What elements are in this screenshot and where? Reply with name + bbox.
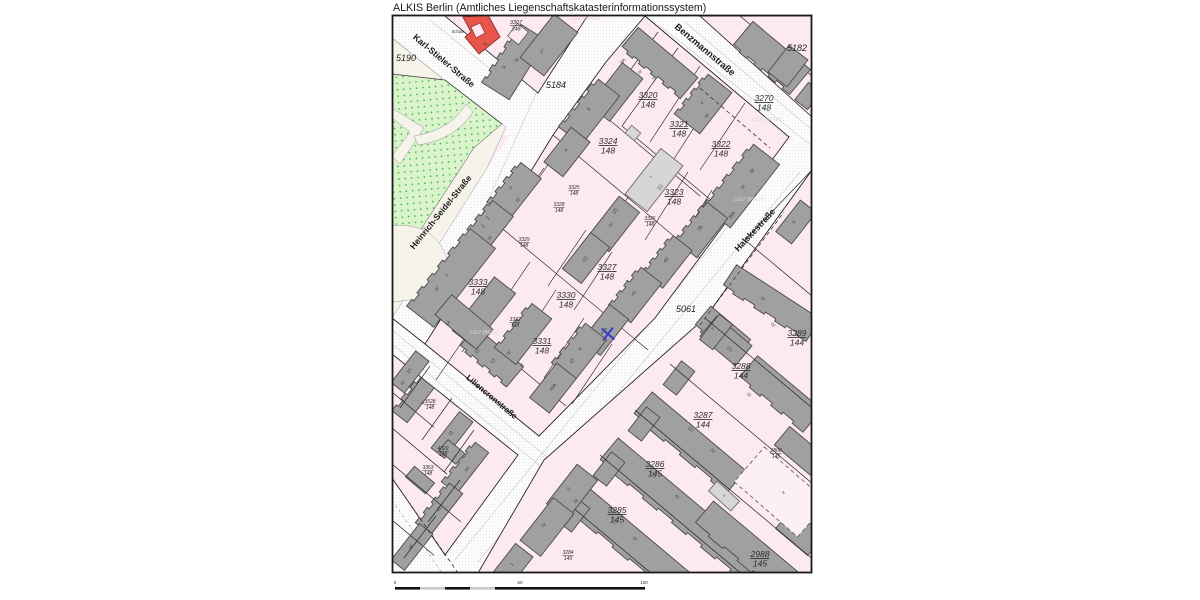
svg-text:148: 148 <box>757 103 771 113</box>
svg-text:148: 148 <box>426 405 435 411</box>
svg-text:3284: 3284 <box>562 550 573 556</box>
svg-text:3329: 3329 <box>518 237 529 243</box>
svg-text:LGV (8642l): LGV (8642l) <box>752 117 782 123</box>
svg-text:5061: 5061 <box>676 304 696 314</box>
svg-text:100: 100 <box>640 580 648 585</box>
svg-text:3270: 3270 <box>755 93 774 103</box>
svg-text:148: 148 <box>641 100 655 110</box>
svg-text:148: 148 <box>471 287 485 297</box>
svg-text:3328: 3328 <box>553 202 564 208</box>
svg-text:4822: 4822 <box>437 446 448 452</box>
svg-text:148: 148 <box>559 300 573 310</box>
svg-text:145: 145 <box>772 454 781 460</box>
svg-text:148: 148 <box>511 323 520 329</box>
svg-text:I: I <box>723 493 724 498</box>
svg-text:145: 145 <box>753 559 767 569</box>
svg-text:50: 50 <box>517 580 523 585</box>
svg-text:2860: 2860 <box>769 448 781 454</box>
svg-text:3363: 3363 <box>422 465 433 471</box>
svg-text:148: 148 <box>600 272 614 282</box>
svg-text:148: 148 <box>424 471 433 477</box>
svg-text:148: 148 <box>714 149 728 159</box>
svg-text:3321: 3321 <box>670 119 689 129</box>
svg-text:5190: 5190 <box>396 53 416 63</box>
svg-text:144: 144 <box>734 371 748 381</box>
svg-text:3326: 3326 <box>644 216 655 222</box>
svg-text:3333: 3333 <box>469 277 488 287</box>
svg-text:3322: 3322 <box>712 139 731 149</box>
svg-text:3287: 3287 <box>694 410 713 420</box>
svg-text:148: 148 <box>520 243 529 249</box>
svg-text:5182: 5182 <box>787 43 807 53</box>
svg-text:2988: 2988 <box>750 549 770 559</box>
svg-text:3307: 3307 <box>510 20 523 26</box>
svg-text:148: 148 <box>439 452 448 458</box>
svg-text:145: 145 <box>564 556 573 562</box>
svg-text:3286: 3286 <box>646 459 665 469</box>
svg-text:148: 148 <box>667 197 681 207</box>
svg-text:148: 148 <box>570 191 579 197</box>
svg-text:148: 148 <box>511 27 521 33</box>
svg-text:148: 148 <box>672 129 686 139</box>
svg-text:3327: 3327 <box>598 262 617 272</box>
svg-text:LGV (8642l): LGV (8642l) <box>570 16 600 22</box>
svg-text:3323: 3323 <box>665 187 684 197</box>
svg-text:148: 148 <box>555 208 564 214</box>
svg-text:3320: 3320 <box>639 90 658 100</box>
svg-text:ALKIS Berlin (Amtliches Liegen: ALKIS Berlin (Amtliches Liegenschaftskat… <box>393 2 706 14</box>
svg-text:LGV (8642l): LGV (8642l) <box>734 197 764 203</box>
svg-text:148: 148 <box>535 346 549 356</box>
svg-text:3331: 3331 <box>533 336 552 346</box>
svg-text:3288: 3288 <box>732 361 751 371</box>
svg-text:3289: 3289 <box>788 328 807 338</box>
svg-text:LGV (8642l): LGV (8642l) <box>470 330 500 336</box>
svg-text:3325: 3325 <box>568 185 579 191</box>
svg-text:3324: 3324 <box>599 136 618 146</box>
svg-text:148: 148 <box>646 222 655 228</box>
svg-text:3330: 3330 <box>557 290 576 300</box>
svg-text:-1: -1 <box>781 490 786 495</box>
svg-text:5184: 5184 <box>546 80 566 90</box>
svg-text:3528: 3528 <box>424 399 435 405</box>
svg-text:148: 148 <box>601 146 615 156</box>
svg-text:144: 144 <box>696 420 710 430</box>
svg-text:Schule: Schule <box>452 29 465 34</box>
svg-text:144: 144 <box>790 338 804 348</box>
svg-text:3285: 3285 <box>608 505 627 515</box>
svg-text:3332: 3332 <box>509 317 520 323</box>
